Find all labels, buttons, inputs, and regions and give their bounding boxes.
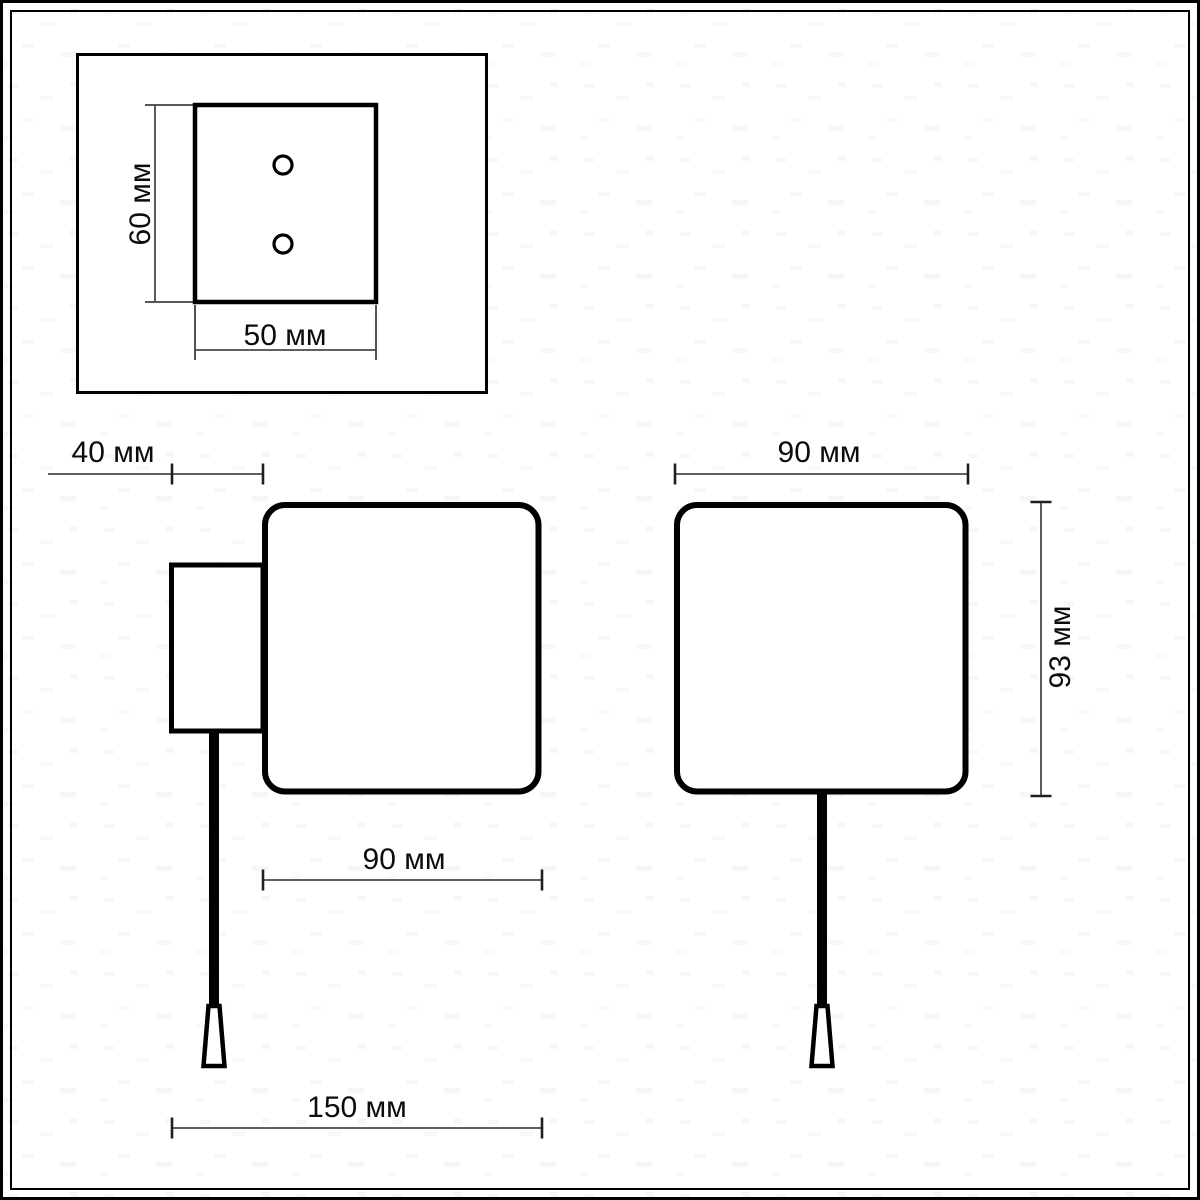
body-depth-dimension-label: 90 мм bbox=[363, 843, 446, 876]
lamp-dimension-drawing: 60 мм 50 мм 40 мм 90 м bbox=[0, 0, 1200, 1200]
screw-hole-top bbox=[274, 156, 292, 174]
front-height-dimension-label: 93 мм bbox=[1044, 606, 1077, 689]
plate-height-dimension-label: 60 мм bbox=[124, 163, 157, 246]
mounting-plate-detail-view: 60 мм 50 мм bbox=[78, 55, 487, 393]
lamp-body-side-outline bbox=[265, 505, 539, 792]
bracket-depth-dimension-label: 40 мм bbox=[72, 436, 155, 469]
pull-knob-front bbox=[812, 1006, 833, 1066]
plate-width-dimension-label: 50 мм bbox=[244, 319, 327, 352]
overall-depth-dimension-label: 150 мм bbox=[307, 1091, 407, 1124]
pull-cord-front bbox=[817, 791, 827, 1007]
pull-knob-side bbox=[204, 1006, 225, 1066]
lamp-body-front-outline bbox=[677, 505, 966, 792]
screw-hole-bottom bbox=[274, 235, 292, 253]
mounting-plate-outline bbox=[195, 105, 376, 302]
dimension-drawing-page: 60 мм 50 мм 40 мм 90 м bbox=[0, 0, 1200, 1200]
front-width-dimension-label: 90 мм bbox=[778, 436, 861, 469]
pull-cord-side bbox=[209, 731, 219, 1007]
wall-bracket-outline bbox=[172, 565, 264, 731]
